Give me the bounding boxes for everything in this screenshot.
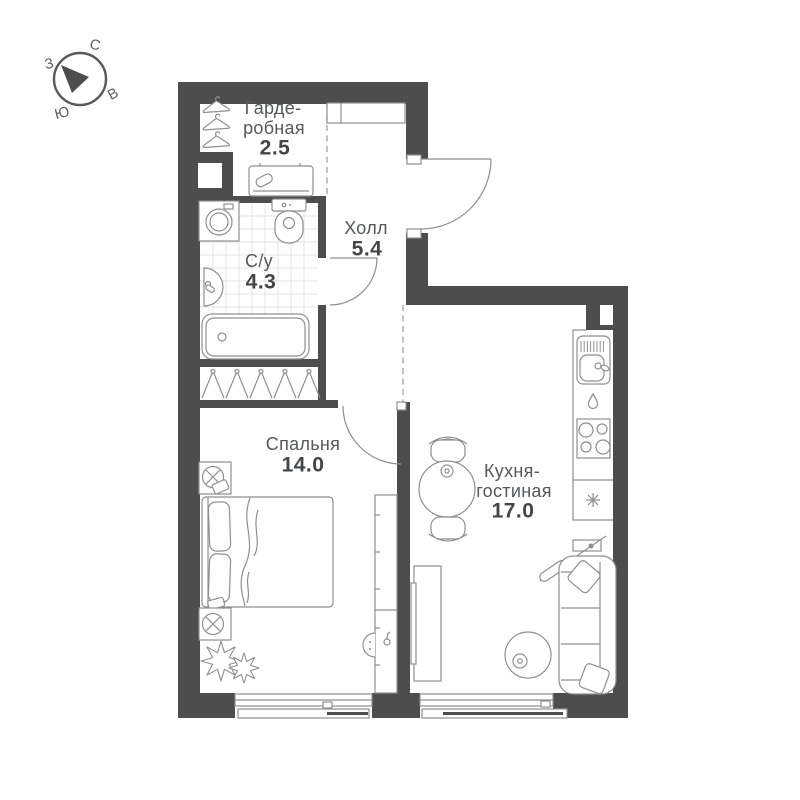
room-area-bathroom: 4.3 (246, 272, 277, 293)
tv-stand-icon (411, 566, 441, 681)
room-area-hall: 5.4 (352, 239, 383, 260)
compass-arrow-icon (61, 65, 89, 93)
compass-west-label: З (43, 56, 56, 74)
stove-icon (577, 419, 610, 458)
toilet-icon (272, 199, 306, 243)
room-area-bedroom: 14.0 (282, 455, 325, 476)
dining-chair-icon (429, 437, 467, 462)
fridge-icon (586, 493, 600, 507)
vanity-sink-icon (249, 163, 313, 196)
closet-rod-icon (202, 370, 320, 399)
room-label-kitchen-living: гостиная (476, 482, 552, 500)
bedroom-window (235, 694, 372, 718)
hall-cabinet-icon (327, 103, 405, 123)
room-label-bedroom: Спальня (266, 435, 340, 453)
coffee-table-icon (505, 632, 551, 678)
washing-machine-icon (199, 201, 239, 241)
room-label-bathroom: С/у (245, 252, 273, 270)
bedroom-wardrobe-icon (375, 495, 397, 693)
kitchen-sink-icon (577, 336, 610, 384)
bathroom-door (330, 258, 377, 305)
room-area-kitchen-living: 17.0 (492, 501, 535, 522)
nightstand-lamp-icon (199, 462, 231, 494)
compass-north-label: С (88, 36, 102, 54)
room-area-wardrobe: 2.5 (260, 138, 291, 159)
floor-plan: С З В Ю Гарде- робная 2.5 Холл 5.4 С/у 4… (0, 0, 800, 800)
room-label-hall: Холл (344, 219, 388, 237)
wall-niche (198, 163, 222, 188)
bedroom-door (343, 402, 406, 464)
sofa-icon (559, 556, 616, 695)
bed-icon (202, 497, 333, 607)
room-label-wardrobe: робная (243, 119, 305, 137)
dishwasher-icon (589, 394, 598, 409)
bathtub-icon (202, 314, 309, 359)
compass: С З В Ю (43, 36, 121, 123)
compass-south-label: Ю (53, 104, 71, 123)
washbasin-icon (204, 268, 223, 306)
entrance-door (407, 155, 491, 238)
room-label-wardrobe: Гарде- (245, 99, 302, 117)
kitchen-window (420, 694, 567, 718)
dining-chair-icon (429, 517, 467, 541)
room-label-kitchen-living: Кухня- (484, 462, 540, 480)
stool-icon (363, 633, 375, 657)
plant-icon (201, 641, 259, 683)
dining-table-icon (419, 461, 475, 517)
compass-east-label: В (105, 85, 121, 104)
